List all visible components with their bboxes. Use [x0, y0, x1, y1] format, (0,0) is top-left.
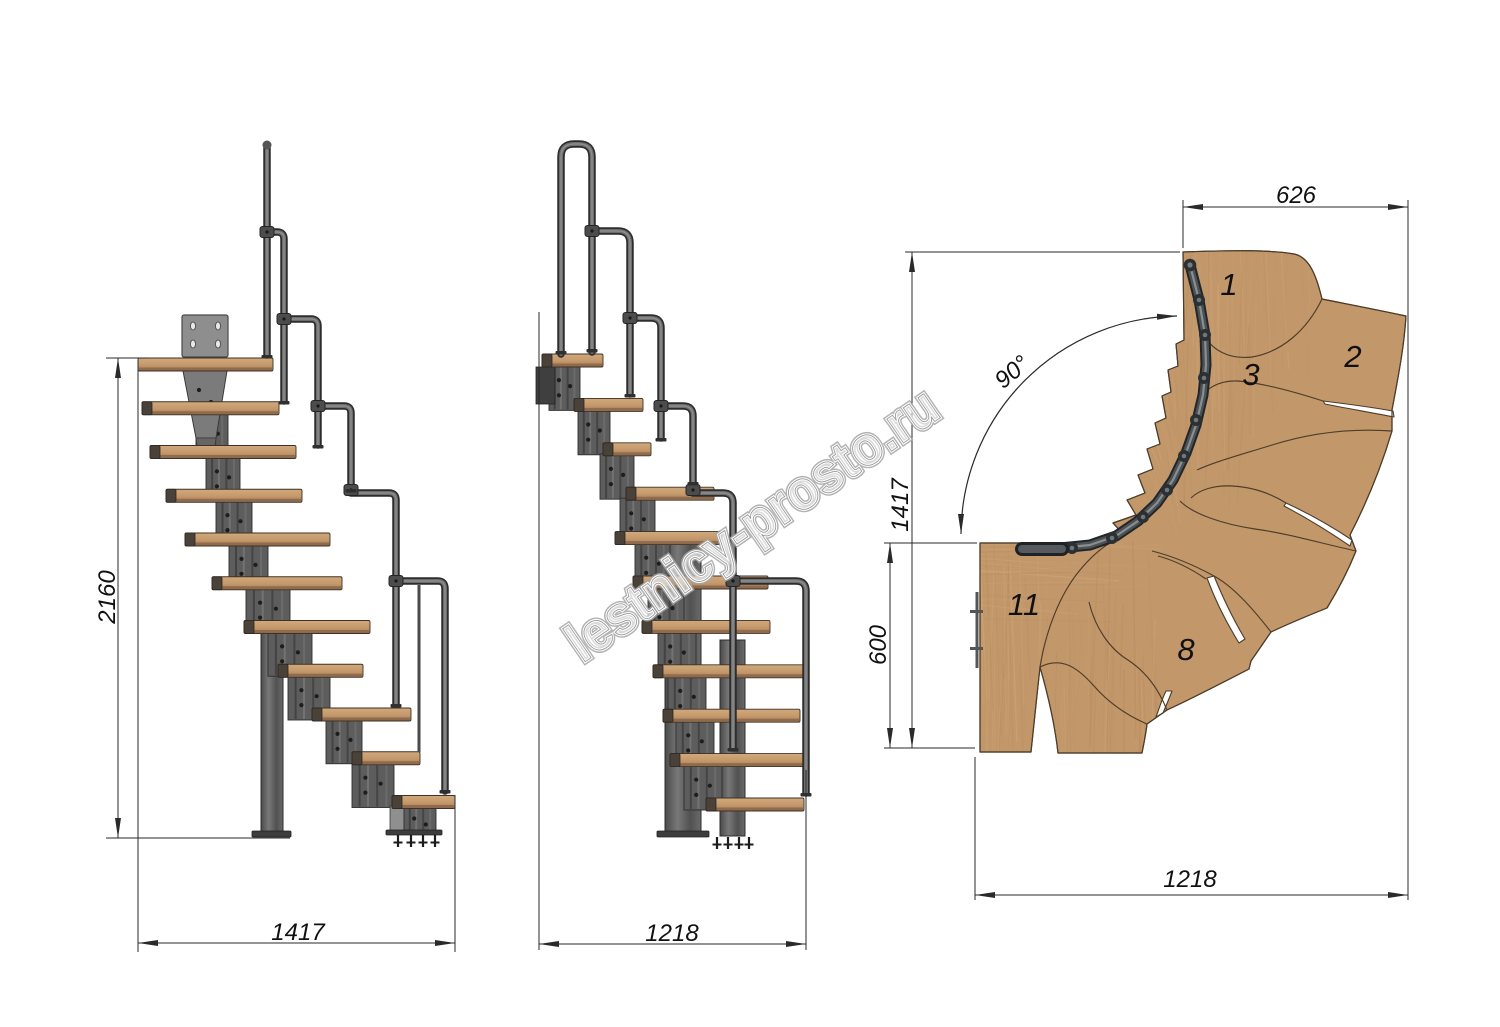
svg-text:1417: 1417	[271, 919, 326, 946]
svg-text:1417: 1417	[887, 477, 914, 532]
svg-text:8: 8	[1177, 632, 1195, 667]
svg-text:1: 1	[1220, 267, 1237, 302]
svg-text:1218: 1218	[645, 920, 699, 947]
svg-text:2160: 2160	[94, 570, 121, 625]
svg-text:600: 600	[865, 624, 892, 665]
svg-text:11: 11	[1008, 587, 1040, 622]
svg-text:1218: 1218	[1163, 866, 1217, 893]
svg-text:2: 2	[1343, 339, 1361, 374]
svg-text:626: 626	[1276, 182, 1317, 209]
svg-text:3: 3	[1242, 357, 1259, 392]
